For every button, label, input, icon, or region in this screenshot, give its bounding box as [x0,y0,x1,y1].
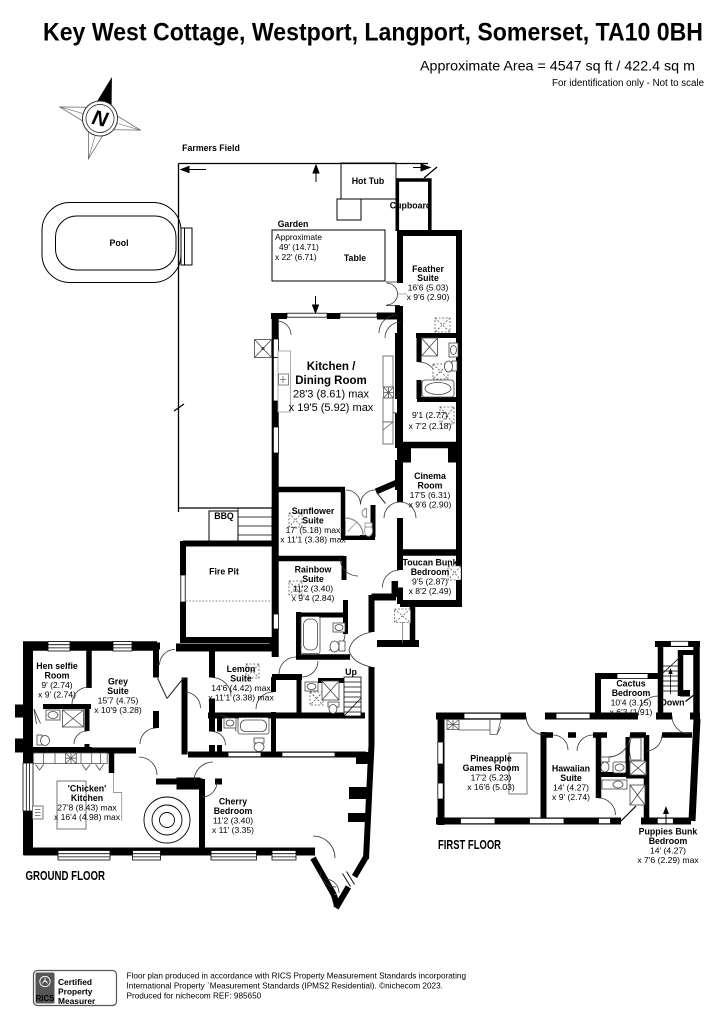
svg-text:9' (2.74): 9' (2.74) [41,680,72,690]
svg-text:x 11'1 (3.38) max: x 11'1 (3.38) max [280,535,346,545]
svg-text:Hot Tub: Hot Tub [352,176,385,186]
svg-text:x 6'3 (1.91): x 6'3 (1.91) [610,707,653,717]
svg-text:Sunflower: Sunflower [292,506,335,516]
svg-text:x 7'6 (2.29) max: x 7'6 (2.29) max [637,855,699,865]
svg-text:Room: Room [45,671,70,681]
svg-text:Cherry: Cherry [219,797,247,807]
svg-text:28'3 (8.61) max: 28'3 (8.61) max [293,389,370,401]
svg-text:27'8 (8.43) max: 27'8 (8.43) max [57,803,117,813]
svg-text:Bedroom: Bedroom [649,836,688,846]
svg-text:Pineapple: Pineapple [470,754,512,764]
svg-text:Farmers Field: Farmers Field [182,143,240,153]
svg-text:15'7 (4.75): 15'7 (4.75) [98,696,139,706]
svg-text:Suite: Suite [302,516,324,526]
svg-text:9'1 (2.77): 9'1 (2.77) [412,410,448,420]
svg-text:For identification only - Not: For identification only - Not to scale [552,78,704,89]
svg-text:'Chicken': 'Chicken' [68,784,106,794]
svg-text:BBQ: BBQ [214,511,234,521]
svg-text:x 8'2 (2.49): x 8'2 (2.49) [409,586,452,596]
svg-text:RICS: RICS [36,994,55,1003]
svg-text:Fire Pit: Fire Pit [209,567,239,577]
svg-text:Room: Room [418,481,443,491]
svg-text:10'4 (3.15): 10'4 (3.15) [611,698,652,708]
svg-text:Property: Property [58,987,93,997]
svg-text:Hawaiian: Hawaiian [552,764,590,774]
svg-text:x 22' (6.71): x 22' (6.71) [275,252,317,262]
svg-text:Pool: Pool [109,238,128,248]
svg-text:x 9' (2.74): x 9' (2.74) [552,792,590,802]
svg-text:x 10'9 (3.28): x 10'9 (3.28) [94,705,142,715]
svg-text:Kitchen /: Kitchen / [307,361,356,373]
svg-text:x 9'4 (2.84): x 9'4 (2.84) [292,593,335,603]
svg-text:Bedroom: Bedroom [411,567,450,577]
svg-text:Measurer: Measurer [58,996,96,1006]
svg-text:Suite: Suite [417,273,439,283]
svg-text:Approximate: Approximate [275,232,322,242]
svg-text:Toucan Bunk: Toucan Bunk [402,558,457,568]
svg-text:x 7'2 (2.18): x 7'2 (2.18) [409,421,452,431]
svg-text:11'2 (3.40): 11'2 (3.40) [213,816,253,826]
svg-text:x 16'6 (5.03): x 16'6 (5.03) [467,782,515,792]
svg-text:11'2 (3.40): 11'2 (3.40) [293,584,333,594]
svg-text:x 19'5 (5.92) max: x 19'5 (5.92) max [289,402,374,414]
svg-text:Hen selfie: Hen selfie [36,661,78,671]
svg-text:x 9'6 (2.90): x 9'6 (2.90) [407,292,450,302]
svg-text:Down: Down [661,698,685,708]
svg-text:Up: Up [345,667,357,677]
svg-text:x 11'1 (3.38) max: x 11'1 (3.38) max [208,693,274,703]
svg-text:Grey: Grey [108,677,128,687]
svg-text:Produced for nichecom REF:: Produced for nichecom REF: 985650 [127,992,262,1001]
svg-text:Suite: Suite [230,674,252,684]
svg-text:17'2 (5.23): 17'2 (5.23) [471,773,512,783]
svg-text:Puppies Bunk: Puppies Bunk [639,827,698,837]
svg-text:International Property `Measur: International Property `Measurement Stan… [127,982,443,991]
svg-text:Cactus: Cactus [616,679,645,689]
svg-text:Rainbow: Rainbow [295,565,332,575]
svg-text:Garden: Garden [278,219,309,229]
svg-text:14' (4.27): 14' (4.27) [553,783,589,793]
svg-text:Kitchen: Kitchen [71,793,103,803]
svg-text:Certified: Certified [58,977,92,987]
svg-text:Suite: Suite [107,686,129,696]
svg-text:Floor plan produced in accorda: Floor plan produced in accordance with R… [127,972,467,981]
svg-text:Key West Cottage, Westport, La: Key West Cottage, Westport, Langport, So… [43,19,703,47]
svg-text:Games Room: Games Room [463,763,520,773]
svg-text:Lemon: Lemon [227,664,256,674]
svg-text:Suite: Suite [302,574,324,584]
svg-text:17'5 (6.31): 17'5 (6.31) [410,490,451,500]
svg-text:FIRST FLOOR: FIRST FLOOR [438,837,501,852]
svg-text:Suite: Suite [560,773,582,783]
svg-text:9'5 (2.87): 9'5 (2.87) [412,577,448,587]
svg-text:x 16'4 (4.98) max: x 16'4 (4.98) max [54,812,121,822]
svg-text:17' (5.18) max: 17' (5.18) max [286,525,341,535]
svg-text:x 9' (2.74): x 9' (2.74) [38,690,76,700]
svg-text:Dining Room: Dining Room [295,375,367,387]
svg-text:49' (14.71): 49' (14.71) [279,242,319,252]
svg-text:GROUND FLOOR: GROUND FLOOR [26,868,106,883]
svg-text:Cinema: Cinema [414,471,446,481]
svg-text:Bedroom: Bedroom [612,688,651,698]
svg-text:x 9'6 (2.90): x 9'6 (2.90) [409,500,452,510]
svg-text:16'6 (5.03): 16'6 (5.03) [408,283,449,293]
svg-text:Approximate Area = 4547 sq ft: Approximate Area = 4547 sq ft / 422.4 sq… [420,58,695,74]
svg-text:14'6 (4.42) max: 14'6 (4.42) max [211,683,271,693]
svg-text:14' (4.27): 14' (4.27) [650,846,686,856]
svg-text:Table: Table [344,253,366,263]
svg-text:x 11' (3.35): x 11' (3.35) [212,825,254,835]
svg-text:Bedroom: Bedroom [214,806,253,816]
